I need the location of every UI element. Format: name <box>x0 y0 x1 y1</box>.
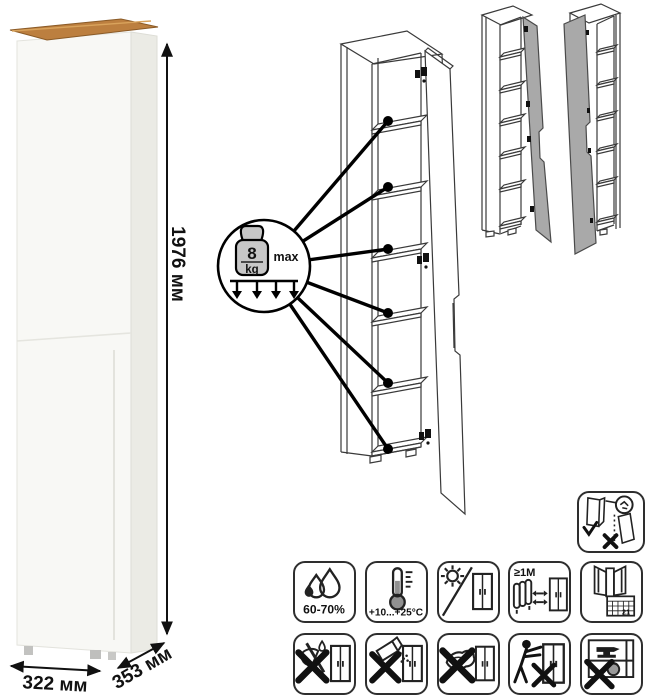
calendar-icon: 21 <box>607 596 634 616</box>
wall-anchor-warning-icon <box>577 491 645 553</box>
no-abrasives-icon <box>365 633 428 695</box>
wardrobe-glyph <box>550 578 567 610</box>
door-variant-left-drawing <box>482 6 551 242</box>
wardrobe-glyph <box>331 646 350 681</box>
cabinet-foot <box>24 646 33 655</box>
cabinet-foot <box>90 650 101 659</box>
radiator-icon <box>514 580 531 614</box>
drop-icon <box>319 641 325 651</box>
no-dragging-graphic <box>510 635 568 692</box>
door-variant-right-drawing <box>564 4 620 254</box>
ventilation-graphic: 21 <box>582 563 640 620</box>
cabinet-foot <box>108 652 116 660</box>
ventilation-icon: 21 <box>580 561 643 623</box>
temperature-graphic: +10...+25°C <box>367 563 425 620</box>
open-door <box>425 51 465 514</box>
humidity-graphic: 60-70% <box>295 563 353 620</box>
powder-grains <box>401 652 409 663</box>
distance-label: ≥1М <box>514 567 536 579</box>
exploded-shelf-diagram: 8 kg max <box>218 31 465 514</box>
temperature-icon: +10...+25°C <box>365 561 428 623</box>
humidity-label: 60-70% <box>303 603 345 617</box>
load-unit: kg <box>245 264 258 276</box>
width-arrow <box>11 666 100 671</box>
no-direct-sunlight-graphic <box>439 563 497 620</box>
wardrobe-glyph <box>403 646 422 681</box>
heat-distance-graphic: ≥1М <box>510 563 568 620</box>
sun-icon <box>441 565 464 586</box>
height-dimension-label: 1976 мм <box>167 226 188 302</box>
calendar-day-label: 21 <box>622 608 630 617</box>
cabinet-side-panel <box>131 32 157 653</box>
small-drop <box>305 585 314 597</box>
shelf-load-callout: 8 kg max <box>218 220 310 312</box>
person-icon <box>515 640 541 682</box>
no-dragging-icon <box>508 633 571 695</box>
gray-door <box>523 17 551 242</box>
wardrobe-glyph <box>476 647 494 681</box>
wall-anchor-graphic <box>579 493 642 550</box>
x-mark <box>587 662 612 687</box>
anvil-icon <box>597 647 620 658</box>
double-arrows <box>532 591 547 606</box>
no-wet-cleaning-icon <box>437 633 500 695</box>
no-sharp-tools-graphic <box>295 635 353 692</box>
no-abrasives-graphic <box>367 635 425 692</box>
weight-icon <box>241 226 263 241</box>
product-photo <box>10 19 158 660</box>
load-qualifier: max <box>273 250 298 264</box>
width-dimension-label: 322 мм <box>22 672 88 696</box>
load-value: 8 <box>247 244 256 263</box>
open-window-icon <box>595 566 626 596</box>
furniture-infographic: 1976 мм 322 мм 353 мм <box>0 0 648 700</box>
shelf-pointer-dots <box>383 116 393 454</box>
no-sharp-tools-icon <box>293 633 356 695</box>
no-wet-cleaning-graphic <box>439 635 497 692</box>
no-direct-sunlight-icon <box>437 561 500 623</box>
temperature-label: +10...+25°C <box>369 608 424 619</box>
shelves <box>372 115 427 456</box>
no-overload-graphic <box>582 635 640 692</box>
wardrobe-glyph <box>473 574 492 609</box>
heat-distance-icon: ≥1М <box>508 561 571 623</box>
humidity-icon: 60-70% <box>293 561 356 623</box>
no-overload-icon <box>580 633 643 695</box>
